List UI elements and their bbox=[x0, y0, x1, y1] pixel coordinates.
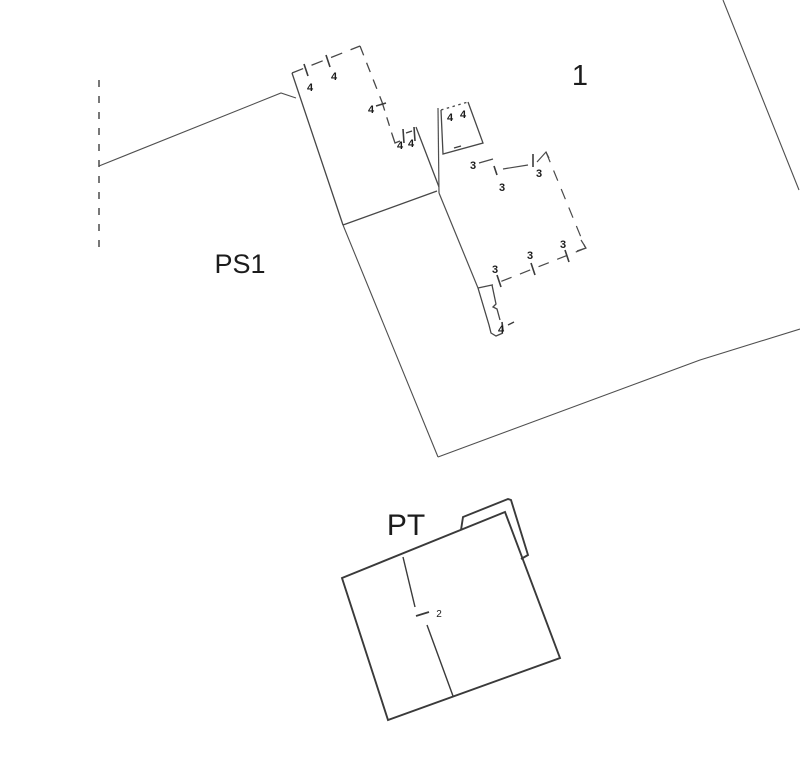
dim-3-top-3: 3 bbox=[536, 168, 542, 180]
parcel-west-edge bbox=[343, 225, 438, 457]
tick-top-2 bbox=[326, 55, 330, 67]
main-building-right-wall-a bbox=[360, 46, 382, 102]
main-building-right-wall-b bbox=[382, 102, 392, 134]
label-ps1: PS1 bbox=[214, 249, 265, 279]
dim-4-top-2: 4 bbox=[331, 71, 338, 83]
room3-top-wall-b bbox=[503, 165, 528, 169]
dim-3-bot-1: 3 bbox=[492, 264, 498, 276]
dim-4-step-2: 4 bbox=[408, 138, 415, 150]
tick-top-1 bbox=[304, 64, 308, 76]
label-parcel-1: 1 bbox=[572, 60, 588, 92]
plan-shapes-group bbox=[99, 0, 800, 720]
tick-step-dash bbox=[406, 131, 412, 133]
dim-3-bot-2: 3 bbox=[527, 250, 533, 262]
dim-4-annex-2: 4 bbox=[460, 109, 467, 121]
drawing-page: 1PS1PT444444443333332 bbox=[0, 0, 800, 773]
parcel-south-edge bbox=[438, 329, 800, 457]
dim-3-top-1: 3 bbox=[470, 160, 476, 172]
room3-tick-bot-1 bbox=[497, 275, 501, 287]
main-building-right-wall-c bbox=[416, 127, 439, 187]
pt-annex-outline bbox=[461, 499, 528, 559]
dim-3-top-2: 3 bbox=[499, 182, 505, 194]
parcel-east-edge bbox=[723, 0, 799, 190]
boundary-west-line bbox=[99, 93, 296, 166]
plan-labels-group: 1PS1PT444444443333332 bbox=[214, 60, 588, 620]
dim-4-annex-1: 4 bbox=[447, 112, 454, 124]
dim-4-right-1: 4 bbox=[368, 104, 375, 116]
tick-step-1 bbox=[403, 129, 404, 143]
room3-bottom-wall bbox=[492, 248, 586, 285]
main-building-bottom-wall bbox=[343, 191, 437, 225]
dim-3-bot-3: 3 bbox=[560, 239, 566, 251]
pt-divider-tick bbox=[416, 612, 429, 616]
room3-top-wall-a bbox=[479, 159, 493, 163]
room3-tick-top-1 bbox=[494, 166, 497, 175]
dim-4-stub: 4 bbox=[498, 324, 505, 336]
stub-dash bbox=[508, 322, 514, 325]
annex-bottom-dash bbox=[454, 146, 461, 148]
dim-2-pt: 2 bbox=[436, 609, 442, 620]
tick-step-2 bbox=[414, 127, 415, 141]
pt-divider-upper bbox=[403, 557, 415, 607]
pt-divider-lower bbox=[427, 625, 453, 696]
label-pt: PT bbox=[387, 509, 425, 542]
interior-diagonal-line bbox=[439, 193, 478, 288]
dim-4-top-1: 4 bbox=[307, 82, 314, 94]
dim-4-step-1: 4 bbox=[397, 140, 404, 152]
room3-bottom-left-link bbox=[478, 285, 492, 288]
tick-right-1 bbox=[376, 103, 386, 106]
plan-canvas: 1PS1PT444444443333332 bbox=[0, 0, 800, 773]
room3-tick-bot-2 bbox=[531, 263, 535, 275]
annex-west-line bbox=[438, 108, 439, 193]
main-building-top-wall bbox=[292, 46, 360, 73]
stub-right-side bbox=[492, 285, 500, 320]
room3-right-wall bbox=[546, 152, 585, 247]
main-building-left-wall bbox=[292, 73, 343, 225]
